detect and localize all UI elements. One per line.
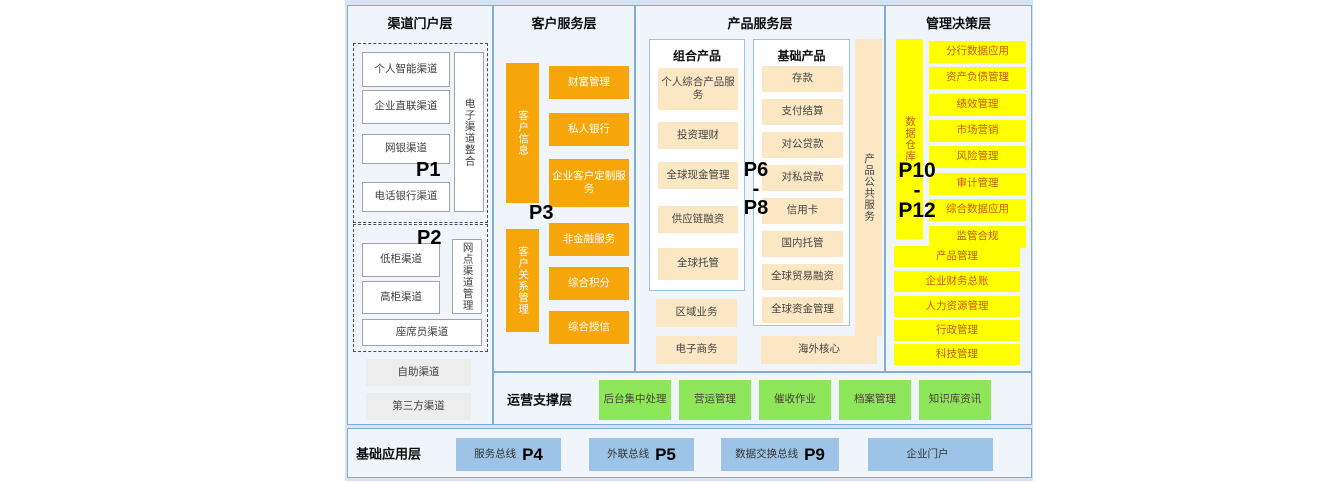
- channel-item: 电话银行渠道: [362, 182, 450, 212]
- diagram-background: 渠道门户层 个人智能渠道 企业直联渠道 网银渠道 电话银行渠道 电子渠道整合 P…: [345, 0, 1033, 481]
- band-title: 运营支撑层: [507, 389, 572, 408]
- basic-product-item: 全球贸易融资: [762, 264, 843, 290]
- panel-customer-service: 客户服务层 客户信息 客户关系管理 财富管理 私人银行 企业客户定制服务 非金融…: [493, 5, 635, 372]
- bus-label: 服务总线: [474, 448, 516, 461]
- customer-service-item: 综合积分: [549, 267, 629, 300]
- electronic-channel-integration-bar: 电子渠道整合: [454, 52, 484, 212]
- bus-label: 企业门户: [907, 448, 949, 461]
- operation-item: 营运管理: [679, 380, 751, 420]
- management-item: 分行数据应用: [929, 41, 1026, 63]
- channel-item: 自助渠道: [366, 359, 471, 386]
- panel-title: 管理决策层: [886, 13, 1031, 32]
- p5-marker: P5: [655, 444, 676, 465]
- basic-product-item: 存款: [762, 66, 843, 92]
- product-extra-item: 电子商务: [656, 336, 737, 364]
- basic-product-item: 全球资金管理: [762, 297, 843, 323]
- customer-service-item: 非金融服务: [549, 223, 629, 256]
- management-item: 审计管理: [929, 173, 1026, 195]
- combo-products-group: 组合产品 个人综合产品服务 投资理财 全球现金管理 供应链融资 全球托管: [649, 39, 745, 291]
- p3-marker: P3: [529, 203, 553, 223]
- channel-group-electronic: 个人智能渠道 企业直联渠道 网银渠道 电话银行渠道 电子渠道整合 P1: [353, 43, 488, 223]
- p-marker-top: P10: [898, 161, 935, 181]
- customer-service-item: 综合授信: [549, 311, 629, 344]
- p2-marker: P2: [417, 228, 441, 248]
- foundation-bus-item: 服务总线 P4: [456, 438, 561, 471]
- channel-item: 座席员渠道: [362, 319, 482, 346]
- channel-item: 个人智能渠道: [362, 52, 450, 87]
- panel-channel-portal: 渠道门户层 个人智能渠道 企业直联渠道 网银渠道 电话银行渠道 电子渠道整合 P…: [347, 5, 493, 425]
- overseas-core-item: 海外核心: [761, 336, 877, 364]
- operation-item: 档案管理: [839, 380, 911, 420]
- p-marker-bottom: P8: [744, 199, 768, 218]
- p-marker-bottom: P12: [898, 201, 935, 221]
- product-public-service-bar: 产品公共服务: [855, 39, 882, 336]
- combo-product-item: 全球托管: [658, 248, 738, 280]
- foundation-bus-item: 外联总线 P5: [589, 438, 694, 471]
- combo-product-item: 投资理财: [658, 122, 738, 149]
- p-marker-dash: -: [914, 181, 921, 201]
- p10-p12-marker: P10 - P12: [892, 161, 942, 221]
- panel-title: 产品服务层: [636, 13, 884, 32]
- band-operation-support: 运营支撑层 后台集中处理 营运管理 催收作业 档案管理 知识库资讯: [493, 372, 1032, 425]
- channel-item: 第三方渠道: [366, 393, 471, 420]
- branch-channel-management-bar: 网点渠道管理: [452, 239, 482, 314]
- p6-p8-marker: P6 - P8: [734, 161, 778, 218]
- customer-service-item: 财富管理: [549, 66, 629, 99]
- management-item: 监管合规: [929, 226, 1026, 248]
- management-item: 市场营销: [929, 120, 1026, 142]
- panel-title: 渠道门户层: [348, 13, 492, 32]
- bus-label: 外联总线: [607, 448, 649, 461]
- band-title: 基础应用层: [356, 444, 421, 463]
- panel-product-service: 产品服务层 组合产品 个人综合产品服务 投资理财 全球现金管理 供应链融资 全球…: [635, 5, 885, 372]
- basic-product-item: 对公贷款: [762, 132, 843, 158]
- management-wide-item: 科技管理: [894, 344, 1020, 365]
- product-extra-item: 区域业务: [656, 299, 737, 327]
- band-foundation-application: 基础应用层 服务总线 P4 外联总线 P5 数据交换总线 P9 企业门户: [347, 428, 1032, 478]
- channel-item: 高柜渠道: [362, 281, 440, 314]
- architecture-diagram: 渠道门户层 个人智能渠道 企业直联渠道 网银渠道 电话银行渠道 电子渠道整合 P…: [0, 0, 1333, 482]
- management-item: 资产负债管理: [929, 67, 1026, 89]
- customer-service-item: 私人银行: [549, 113, 629, 146]
- foundation-bus-item: 数据交换总线 P9: [721, 438, 839, 471]
- customer-info-bar: 客户信息: [506, 63, 539, 203]
- p9-marker: P9: [804, 444, 825, 465]
- management-wide-item: 产品管理: [894, 246, 1020, 267]
- basic-product-item: 国内托管: [762, 231, 843, 257]
- combo-product-item: 全球现金管理: [658, 162, 738, 189]
- channel-item: 企业直联渠道: [362, 90, 450, 124]
- customer-relationship-bar: 客户关系管理: [506, 229, 539, 332]
- basic-product-item: 支付结算: [762, 99, 843, 125]
- management-wide-item: 行政管理: [894, 320, 1020, 341]
- management-item: 风险管理: [929, 146, 1026, 168]
- operation-item: 后台集中处理: [599, 380, 671, 420]
- p4-marker: P4: [522, 444, 543, 465]
- customer-service-item: 企业客户定制服务: [549, 159, 629, 207]
- management-wide-item: 人力资源管理: [894, 296, 1020, 317]
- panel-title: 客户服务层: [494, 13, 634, 32]
- bus-label: 数据交换总线: [735, 448, 798, 461]
- operation-item: 知识库资讯: [919, 380, 991, 420]
- combo-product-item: 个人综合产品服务: [658, 68, 738, 110]
- management-item: 综合数据应用: [929, 199, 1026, 221]
- foundation-bus-item: 企业门户: [868, 438, 993, 471]
- combo-product-item: 供应链融资: [658, 206, 738, 233]
- channel-group-branch: 低柜渠道 高柜渠道 网点渠道管理 座席员渠道 P2: [353, 224, 488, 352]
- management-wide-item: 企业财务总账: [894, 271, 1020, 292]
- group-title: 组合产品: [650, 47, 744, 64]
- management-item: 绩效管理: [929, 94, 1026, 116]
- group-title: 基础产品: [754, 47, 849, 64]
- operation-item: 催收作业: [759, 380, 831, 420]
- p1-marker: P1: [416, 160, 440, 180]
- panel-management-decision: 管理决策层 数据仓库 分行数据应用 资产负债管理 绩效管理 市场营销 风险管理 …: [885, 5, 1032, 372]
